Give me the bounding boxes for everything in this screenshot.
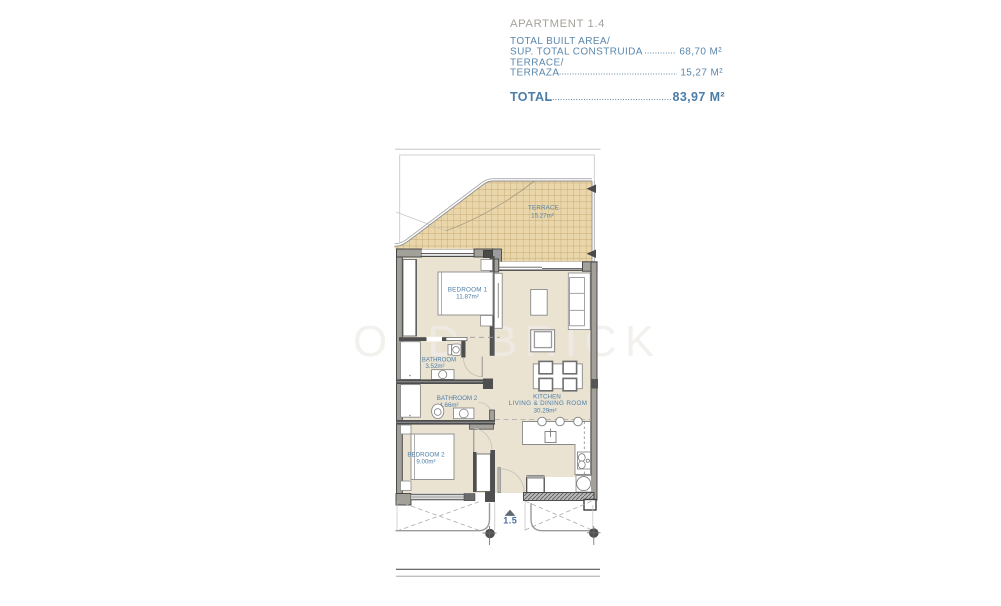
svg-text:68,70 M²: 68,70 M²	[679, 47, 722, 58]
svg-text:SUP. TOTAL CONSTRUIDA: SUP. TOTAL CONSTRUIDA	[510, 47, 643, 58]
svg-text:3.52m²: 3.52m²	[425, 363, 444, 370]
svg-text:15.27m²: 15.27m²	[531, 213, 554, 220]
svg-text:30.29m²: 30.29m²	[533, 408, 556, 415]
svg-text:BEDROOM 1: BEDROOM 1	[448, 287, 488, 294]
svg-text:APARTMENT 1.4: APARTMENT 1.4	[510, 18, 605, 30]
svg-text:BATHROOM 2: BATHROOM 2	[437, 395, 478, 402]
svg-text:TOTAL BUILT AREA/: TOTAL BUILT AREA/	[510, 36, 610, 47]
svg-text:TERRAZA: TERRAZA	[510, 68, 559, 79]
svg-text:1.5: 1.5	[503, 515, 517, 525]
svg-text:11.87m²: 11.87m²	[456, 294, 479, 301]
svg-text:BEDROOM 2: BEDROOM 2	[407, 452, 445, 459]
svg-text:9.00m²: 9.00m²	[416, 459, 435, 466]
svg-text:TOTAL: TOTAL	[510, 90, 553, 104]
svg-text:83,97 M²: 83,97 M²	[672, 90, 725, 104]
svg-text:TERRACE: TERRACE	[528, 205, 559, 212]
svg-text:LIVING & DINING ROOM: LIVING & DINING ROOM	[509, 400, 588, 407]
svg-text:15,27 M²: 15,27 M²	[680, 68, 723, 79]
